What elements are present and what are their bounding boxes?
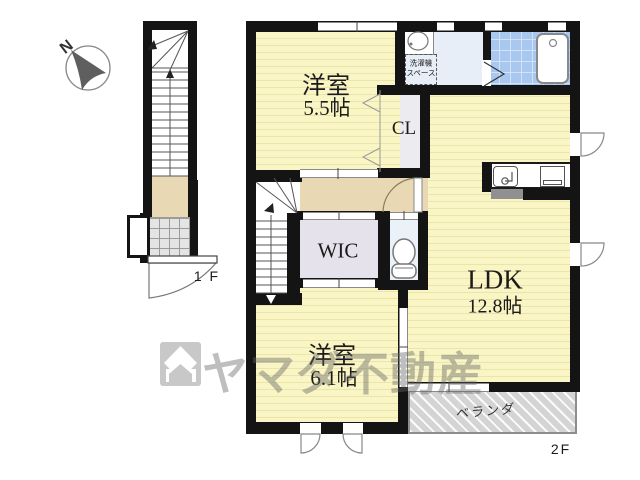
room-label-wic: WIC xyxy=(318,239,359,264)
exterior-door-swing xyxy=(301,434,362,453)
kitchen-base-dark xyxy=(523,188,573,200)
entrance-tiles xyxy=(148,217,190,260)
room-label-closet: CL xyxy=(392,118,416,140)
wall xyxy=(246,293,302,305)
room-size-bedroom-top: 5.5帖 xyxy=(303,92,350,122)
brand-watermark: ヤマダ不動産 xyxy=(202,338,484,404)
sliding-door xyxy=(303,279,375,288)
kitchen-base xyxy=(491,189,523,199)
compass-n-label: N xyxy=(57,37,77,58)
wall xyxy=(246,422,408,434)
door-gap xyxy=(343,423,363,434)
floor-2-label: 2F xyxy=(551,441,571,457)
bathtub-icon xyxy=(536,33,569,84)
wall xyxy=(570,21,580,392)
compass-circle xyxy=(66,46,110,90)
wall xyxy=(246,170,302,182)
door-gap xyxy=(570,133,581,156)
kitchen-sink-icon xyxy=(493,166,518,187)
stove-grill xyxy=(543,180,562,185)
hall-2f xyxy=(297,176,428,213)
wall xyxy=(420,95,430,178)
door-gap xyxy=(570,243,581,266)
entrance-porch xyxy=(127,215,150,258)
floor-plan-canvas: N xyxy=(0,0,640,480)
window xyxy=(318,22,397,31)
wall xyxy=(377,168,430,178)
room-size-ldk: 12.8帖 xyxy=(468,290,523,319)
door-gap xyxy=(300,423,321,434)
brand-logo-icon xyxy=(160,342,201,386)
door-gap xyxy=(482,60,491,86)
stove-icon xyxy=(540,166,565,187)
laundry-label-line2: スペース xyxy=(406,68,435,79)
compass: N xyxy=(57,37,110,90)
north-arrow-icon xyxy=(71,50,106,90)
wall xyxy=(377,85,580,95)
window xyxy=(437,22,454,31)
wall xyxy=(246,21,580,32)
floor-1-label: 1 F xyxy=(194,268,220,284)
window xyxy=(548,22,566,31)
window xyxy=(485,22,502,31)
washbasin-icon xyxy=(404,29,434,55)
exterior-door-swing xyxy=(581,133,604,266)
hall-1f xyxy=(152,176,188,218)
sliding-door xyxy=(303,212,375,220)
sliding-door xyxy=(390,212,418,220)
wall xyxy=(418,211,428,290)
wall xyxy=(287,213,300,305)
sliding-door xyxy=(300,169,378,178)
wall xyxy=(395,21,405,95)
